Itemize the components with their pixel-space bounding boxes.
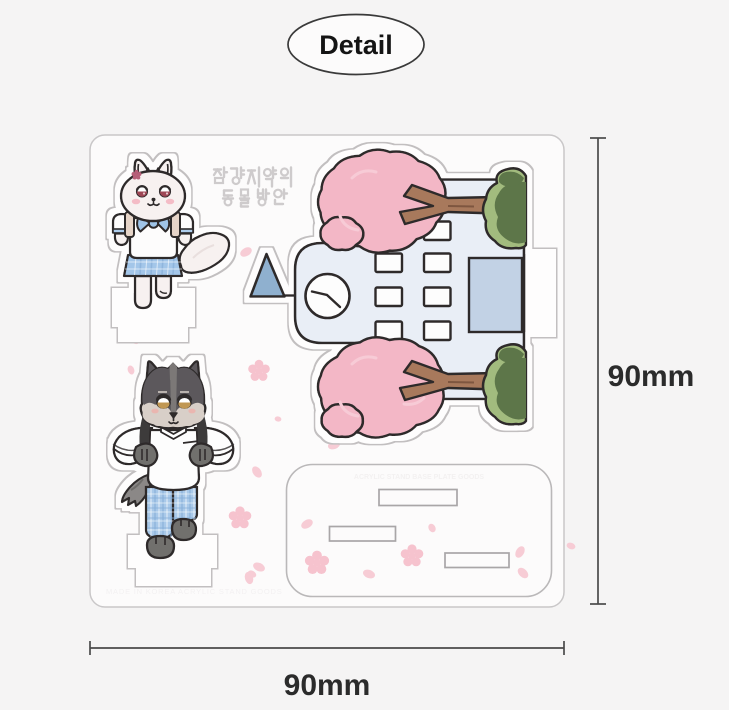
- svg-text:ACRYLIC STAND BASE PLATE GOODS: ACRYLIC STAND BASE PLATE GOODS: [354, 474, 484, 481]
- svg-text:Detail: Detail: [319, 30, 393, 60]
- svg-text:90mm: 90mm: [284, 669, 371, 702]
- svg-text:MADE IN KOREA ACRYLIC STAND GO: MADE IN KOREA ACRYLIC STAND GOODS: [106, 587, 283, 596]
- svg-text:90mm: 90mm: [608, 360, 695, 393]
